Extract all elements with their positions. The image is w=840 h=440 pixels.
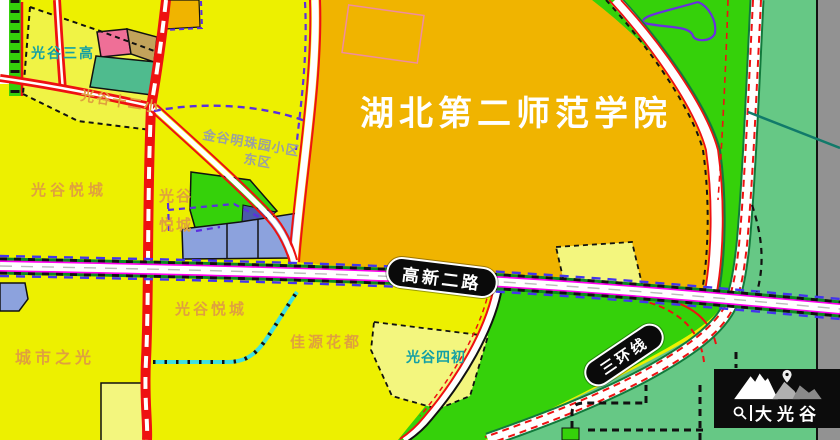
road-top-left-white bbox=[0, 0, 9, 84]
mountain-gray-2 bbox=[793, 385, 822, 399]
label-yuecheng-south: 光谷悦城 bbox=[175, 301, 247, 318]
magnifier-icon bbox=[733, 406, 747, 420]
map-canvas[interactable]: 光谷三高 光谷十二小 金谷明珠园小区 东区 光谷悦城 光谷悦城 湖北第二师范学院… bbox=[0, 0, 840, 440]
label-school-title: 湖北第二师范学院 bbox=[360, 95, 672, 134]
logo-text: 大光谷 bbox=[755, 400, 821, 425]
label-jiayuan-huadu: 佳源花都 bbox=[290, 334, 362, 351]
parcel-bottom-pale bbox=[101, 383, 143, 440]
label-yuecheng-mid-line2: 悦城 bbox=[159, 217, 193, 234]
small-green-square bbox=[562, 428, 579, 440]
mountain-white bbox=[734, 374, 778, 400]
label-yuecheng-mid-line1: 光谷 bbox=[159, 188, 193, 205]
logo-separator-bar bbox=[750, 405, 752, 421]
location-pin-hole bbox=[785, 373, 788, 376]
label-guanggu-sangao: 光谷三高 bbox=[31, 45, 95, 61]
location-pin-icon bbox=[782, 370, 791, 383]
mountains-logo-icon bbox=[722, 369, 832, 400]
label-chengshi-zhiguang: 城市之光 bbox=[15, 350, 95, 368]
label-yuecheng-mid: 光谷悦城 bbox=[159, 182, 193, 240]
daguanggu-watermark: 大光谷 bbox=[714, 369, 840, 428]
label-guanggu-sichu: 光谷四初 bbox=[406, 349, 466, 365]
parcel-pink bbox=[97, 29, 131, 57]
label-yuecheng-west: 光谷悦城 bbox=[31, 182, 107, 199]
